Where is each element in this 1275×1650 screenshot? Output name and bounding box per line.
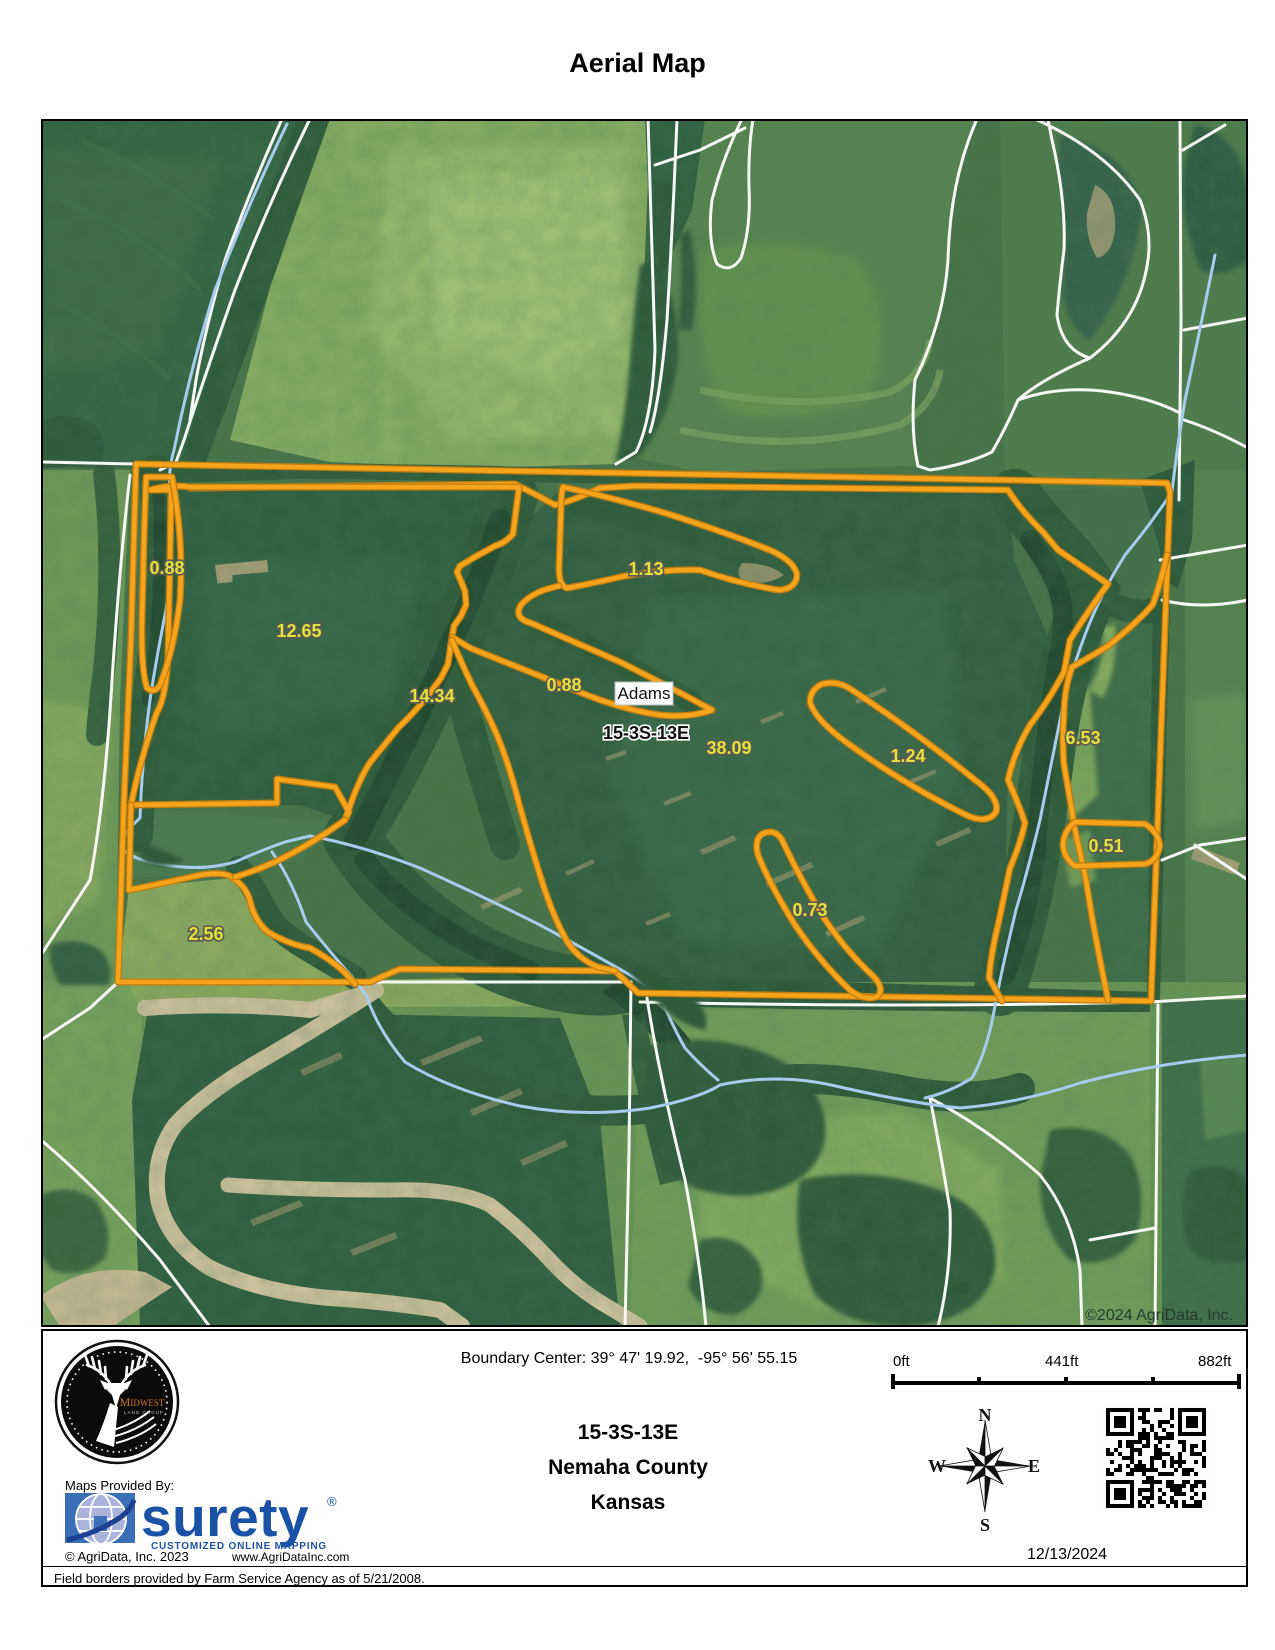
svg-text:0.88: 0.88 (546, 675, 581, 695)
svg-text:15-3S-13E: 15-3S-13E (603, 723, 689, 743)
svg-text:Adams: Adams (618, 684, 671, 703)
svg-text:©2024 AgriData, Inc.: ©2024 AgriData, Inc. (1085, 1307, 1233, 1324)
svg-text:S: S (980, 1515, 990, 1534)
svg-text:1.13: 1.13 (628, 559, 663, 579)
svg-text:®: ® (327, 1494, 337, 1509)
svg-text:0.73: 0.73 (792, 900, 827, 920)
svg-text:1.24: 1.24 (890, 746, 925, 766)
svg-text:surety: surety (141, 1491, 309, 1548)
svg-text:6.53: 6.53 (1065, 728, 1100, 748)
svg-text:14.34: 14.34 (409, 686, 454, 706)
svg-text:0.88: 0.88 (149, 558, 184, 578)
svg-text:LAND GROUP: LAND GROUP (124, 1410, 164, 1415)
svg-text:0.51: 0.51 (1088, 836, 1123, 856)
svg-text:2.56: 2.56 (188, 924, 223, 944)
svg-text:38.09: 38.09 (706, 738, 751, 758)
svg-text:MIDWEST: MIDWEST (120, 1395, 165, 1409)
svg-text:12.65: 12.65 (276, 621, 321, 641)
